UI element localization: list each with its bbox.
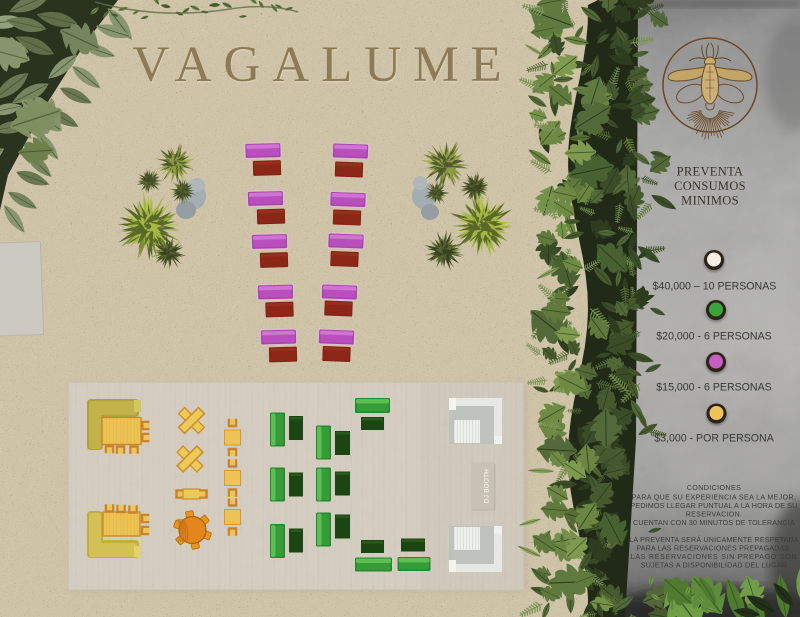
svg-text:CUENTAN CON 30 MINUTOS DE TOLE: CUENTAN CON 30 MINUTOS DE TOLERANCIA [633,519,795,527]
svg-text:PARA QUE SU EXPERIENCIA SEA LA: PARA QUE SU EXPERIENCIA SEA LA MEJOR, [632,494,797,502]
svg-text:$3,000 - POR PERSONA: $3,000 - POR PERSONA [654,433,774,445]
svg-text:CONDICIONES: CONDICIONES [687,484,741,492]
svg-text:PREVENTA: PREVENTA [677,165,744,179]
svg-text:RESERVACION.: RESERVACION. [686,511,743,519]
svg-text:PEDIMOS LLEGAR PUNTUAL A LA HO: PEDIMOS LLEGAR PUNTUAL A LA HORA DE SU [631,502,798,510]
svg-text:MINIMOS: MINIMOS [681,194,739,208]
svg-text:$20,000 - 6 PERSONAS: $20,000 - 6 PERSONAS [656,331,771,343]
svg-text:LA PREVENTA SERÁ UNICAMENTE RE: LA PREVENTA SERÁ UNICAMENTE RESPETADA [629,535,799,544]
svg-text:LAS RESERVACIONES SIN PREPAGO: LAS RESERVACIONES SIN PREPAGO SON [631,553,798,561]
svg-text:DJ BOOTH: DJ BOOTH [484,469,491,503]
svg-text:VAGALUME: VAGALUME [132,37,513,93]
svg-text:$40,000 – 10 PERSONAS: $40,000 – 10 PERSONAS [653,281,777,293]
svg-text:PARA LAS RESERVACIONES PREPAGA: PARA LAS RESERVACIONES PREPAGADAS. [636,545,791,553]
svg-text:SUJETAS A DISPONIBILIDAD DEL L: SUJETAS A DISPONIBILIDAD DEL LUGAR [641,562,787,570]
svg-text:CONSUMOS: CONSUMOS [674,179,746,193]
svg-text:$15,000 - 6 PERSONAS: $15,000 - 6 PERSONAS [656,382,771,394]
